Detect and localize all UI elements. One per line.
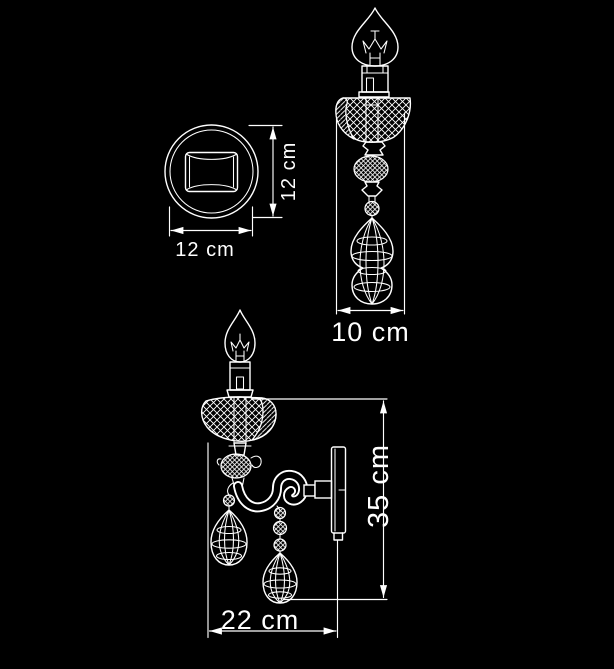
wall-sconce-dimension-drawing: 12 cm 12 cm bbox=[0, 0, 614, 669]
dimension-label-height: 35 cm bbox=[363, 444, 395, 528]
dimension-label-width: 22 cm bbox=[221, 605, 300, 635]
bobeche-side bbox=[336, 98, 410, 142]
plate-width-dimension: 12 cm bbox=[170, 207, 253, 261]
candle-sleeve-front bbox=[227, 362, 253, 397]
dimension-label-plate-width: 12 cm bbox=[175, 239, 234, 261]
bobeche-front bbox=[202, 397, 276, 444]
front-view: 35 cm 22 cm bbox=[202, 310, 395, 638]
extension-lines bbox=[170, 207, 253, 236]
dimension-label-depth: 10 cm bbox=[331, 317, 410, 347]
technical-drawing-canvas: 12 cm 12 cm bbox=[0, 0, 614, 669]
bead-chain bbox=[274, 506, 287, 554]
crystal-pendant-side bbox=[351, 216, 393, 305]
candle-bulb-front bbox=[225, 310, 255, 362]
wall-plate-side-profile bbox=[332, 447, 346, 540]
stem-collar-front bbox=[229, 443, 251, 455]
candle-sleeve-side bbox=[359, 66, 389, 97]
dimension-label-plate-height: 12 cm bbox=[278, 142, 300, 201]
arm-wall-socket bbox=[315, 481, 332, 498]
plate-height-dimension: 12 cm bbox=[249, 126, 300, 218]
scroll-arm bbox=[238, 475, 332, 507]
stem-collar-side bbox=[363, 142, 385, 155]
crystal-ball-side bbox=[354, 156, 388, 182]
crystal-ball-front bbox=[221, 454, 251, 478]
crystal-pendant-center bbox=[263, 553, 297, 603]
plate-center-panel bbox=[186, 153, 238, 192]
candle-bulb-side bbox=[352, 8, 398, 66]
right-scroll-leaf bbox=[251, 456, 261, 467]
crystal-bead-side bbox=[365, 202, 379, 216]
arm-wall-connector bbox=[304, 485, 315, 496]
plate-outer-ring bbox=[165, 125, 258, 218]
depth-dimension: 10 cm bbox=[331, 113, 410, 347]
plate-inner-ring bbox=[170, 130, 253, 213]
lower-collar-side bbox=[362, 182, 382, 203]
side-view: 10 cm bbox=[331, 8, 410, 347]
left-scroll-leaf bbox=[217, 459, 221, 465]
plate-front-view: 12 cm 12 cm bbox=[165, 125, 300, 261]
